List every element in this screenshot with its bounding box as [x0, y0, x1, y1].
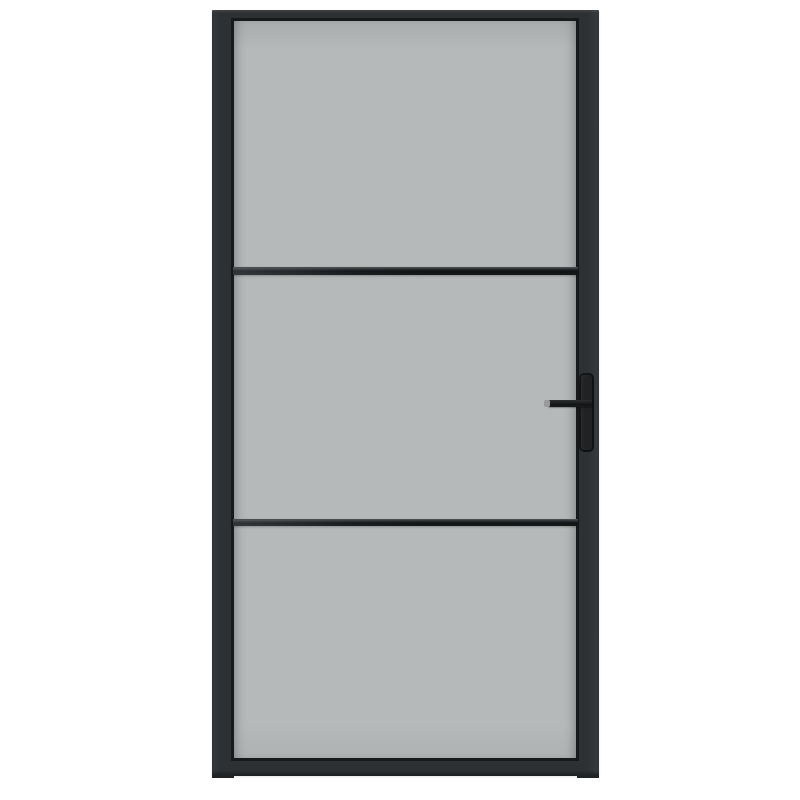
- handle-lever-tip: [544, 400, 550, 407]
- product-photo-canvas: [0, 0, 800, 800]
- handle-backplate: [579, 373, 594, 452]
- glazing-bar-upper: [233, 267, 578, 275]
- frosted-glass-panel: [234, 21, 576, 758]
- glazing-bar-lower: [233, 519, 578, 526]
- handle-lever: [548, 400, 592, 407]
